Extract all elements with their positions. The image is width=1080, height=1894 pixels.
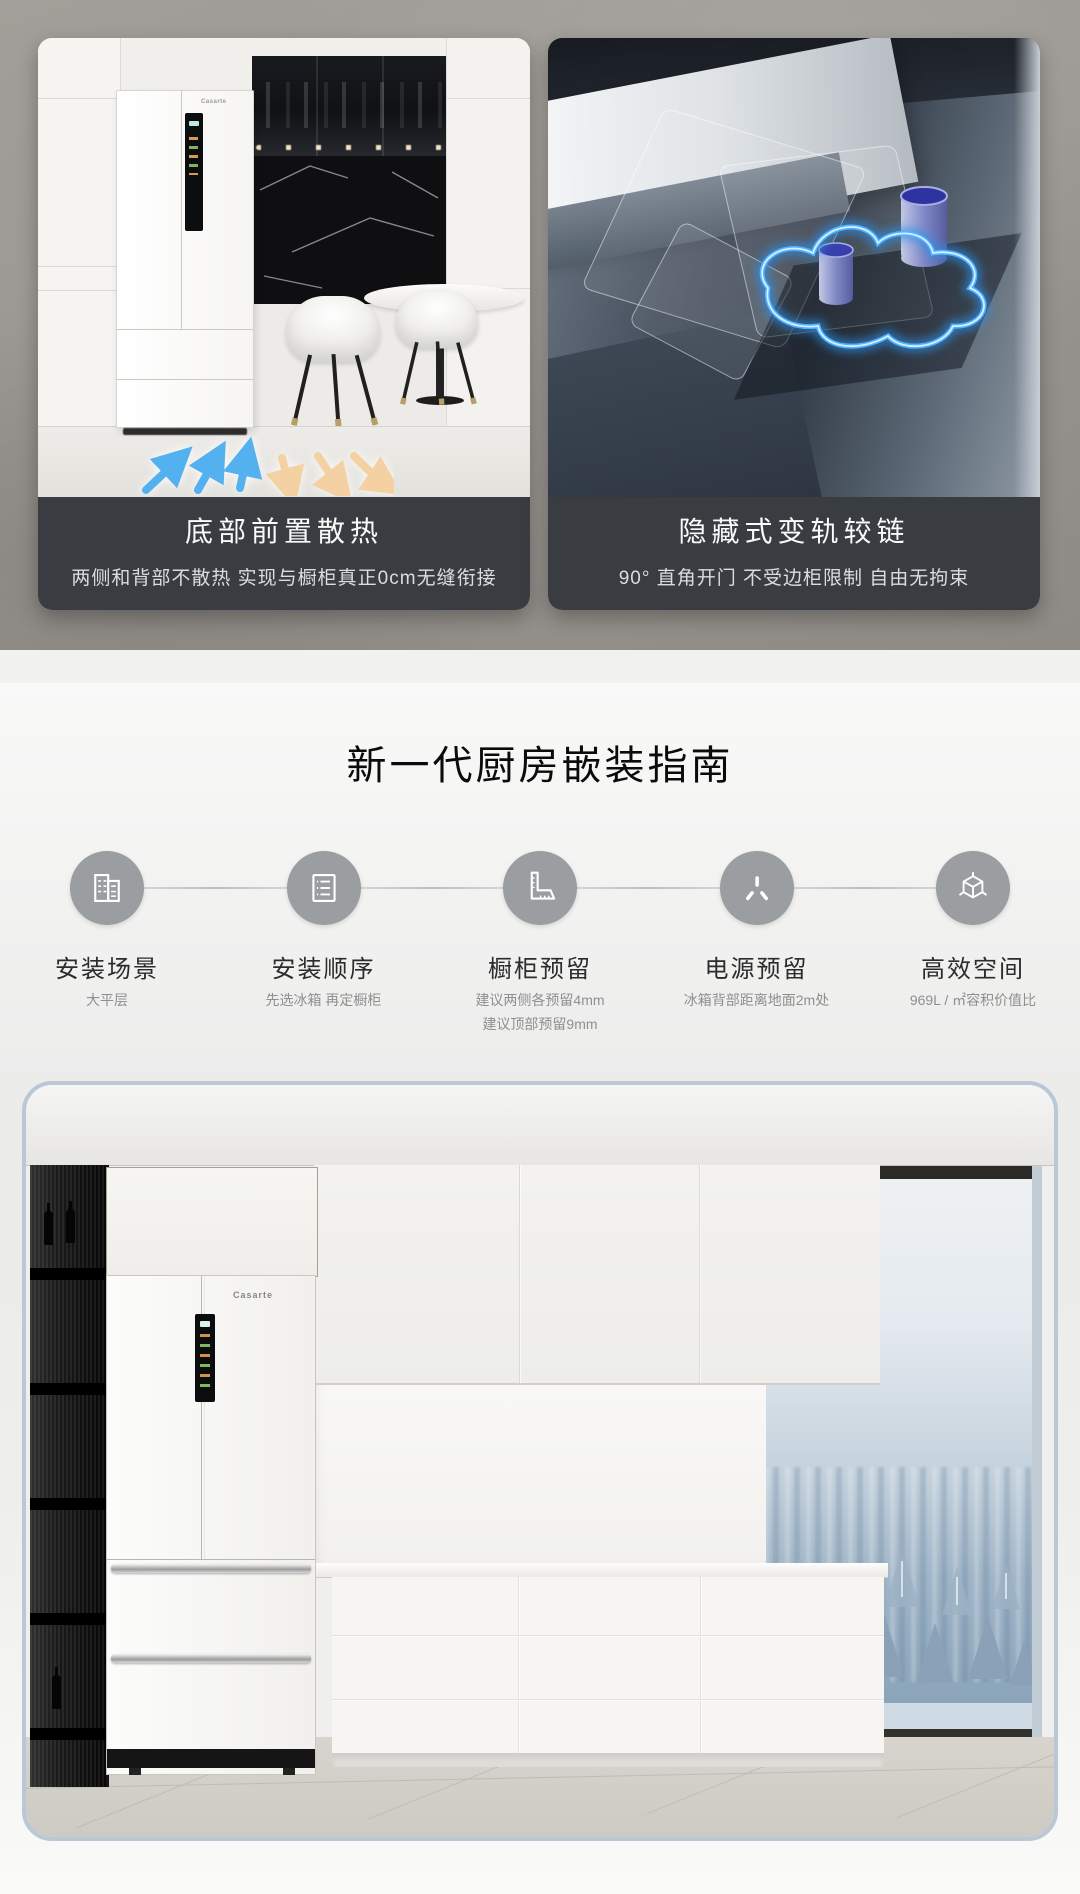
base-drawer-cabinets: [332, 1577, 884, 1767]
fridge-base: [107, 1749, 315, 1768]
step-label: 安装顺序: [214, 949, 434, 984]
list-icon: [304, 868, 344, 908]
kitchen-photo: Casarte: [38, 38, 530, 497]
drawer-handle: [111, 1654, 311, 1663]
step-notes: 建议两侧各预留4mm 建议顶部预留9mm: [415, 989, 665, 1037]
dining-chair: [396, 290, 479, 413]
step-label: 电源预留: [647, 949, 867, 984]
feature-card-cooling: Casarte: [38, 38, 530, 610]
step-cabinet-reserve: 橱柜预留 建议两侧各预留4mm 建议顶部预留9mm: [503, 851, 577, 925]
step-connector: [577, 887, 720, 889]
bottom-vent: [123, 428, 247, 435]
cube-icon: [953, 868, 993, 908]
step-label: 安装场景: [0, 949, 217, 984]
step-connector: [144, 887, 287, 889]
upper-cabinets: [314, 1165, 880, 1385]
step-circle: [70, 851, 144, 925]
hinge-render: [548, 38, 1040, 497]
feature-card-hinge: 隐藏式变轨较链 90° 直角开门 不受边柜限制 自由无拘束: [548, 38, 1040, 610]
countertop: [314, 1563, 888, 1578]
step-notes: 冰箱背部距离地面2m处: [632, 989, 882, 1013]
marble-backsplash: [252, 156, 446, 304]
step-notes: 969L / ㎡容积价值比: [848, 989, 1080, 1013]
card-caption: 底部前置散热 两侧和背部不散热 实现与橱柜真正0cm无缝衔接: [38, 497, 530, 610]
embedded-kitchen-render-card: Casarte: [22, 1081, 1058, 1841]
refrigerator-illustration: Casarte: [116, 90, 254, 428]
step-label: 高效空间: [863, 949, 1080, 984]
step-space: 高效空间 969L / ㎡容积价值比: [936, 851, 1010, 925]
install-steps: 安装场景 大平层: [0, 851, 1080, 1047]
brand-logo: Casarte: [201, 99, 227, 105]
window-frame-side: [1032, 1165, 1042, 1745]
card-subtitle: 90° 直角开门 不受边柜限制 自由无拘束: [548, 563, 1040, 590]
fridge-top-cabinet: [106, 1167, 318, 1277]
control-panel: [195, 1314, 215, 1402]
render-right-fade: [1014, 38, 1040, 497]
door-bottom-seam: [107, 1559, 315, 1560]
hinge-track-glow: [723, 158, 1023, 378]
drawer-handle: [111, 1564, 311, 1573]
airflow-arrows: [134, 436, 394, 496]
dining-chair: [286, 296, 380, 436]
square-ruler-icon: [520, 868, 560, 908]
step-circle: [720, 851, 794, 925]
brand-logo: Casarte: [233, 1290, 273, 1300]
step-scene: 安装场景 大平层: [70, 851, 144, 925]
step-notes: 先选冰箱 再定橱柜: [199, 989, 449, 1013]
buildings-icon: [87, 868, 127, 908]
ceiling: [26, 1085, 1054, 1166]
toe-kick: [332, 1753, 884, 1767]
card-subtitle: 两侧和背部不散热 实现与橱柜真正0cm无缝衔接: [38, 563, 530, 590]
power-socket-icon: [737, 868, 777, 908]
step-order: 安装顺序 先选冰箱 再定橱柜: [287, 851, 361, 925]
step-circle: [503, 851, 577, 925]
step-circle: [287, 851, 361, 925]
embedded-refrigerator: Casarte: [106, 1275, 316, 1775]
card-title: 底部前置散热: [38, 497, 530, 550]
step-connector: [794, 887, 937, 889]
step-power-reserve: 电源预留 冰箱背部距离地面2m处: [720, 851, 794, 925]
cabinet-left: [38, 38, 121, 428]
glassware: [252, 82, 446, 128]
bottle-silhouette: [44, 1211, 53, 1245]
step-connector: [361, 887, 504, 889]
bottle-silhouette: [52, 1675, 61, 1709]
glass-upper-cabinet: [252, 56, 446, 156]
fridge-foot: [283, 1768, 295, 1775]
hinge-cylinder-small: [819, 243, 853, 305]
fridge-foot: [129, 1768, 141, 1775]
install-guide-section: 新一代厨房嵌装指南 安装场景: [0, 683, 1080, 1894]
glass-wine-cabinet: [30, 1165, 109, 1787]
step-label: 橱柜预留: [430, 949, 650, 984]
card-caption: 隐藏式变轨较链 90° 直角开门 不受边柜限制 自由无拘束: [548, 497, 1040, 610]
control-panel: [185, 113, 203, 231]
section-title: 新一代厨房嵌装指南: [0, 683, 1080, 791]
bottle-silhouette: [66, 1209, 75, 1243]
product-detail-page: Casarte: [0, 0, 1080, 1894]
step-circle: [936, 851, 1010, 925]
backsplash: [314, 1383, 766, 1563]
under-cabinet-lights: [256, 145, 442, 150]
card-title: 隐藏式变轨较链: [548, 497, 1040, 550]
step-notes: 大平层: [0, 989, 232, 1013]
feature-cards-section: Casarte: [0, 0, 1080, 650]
